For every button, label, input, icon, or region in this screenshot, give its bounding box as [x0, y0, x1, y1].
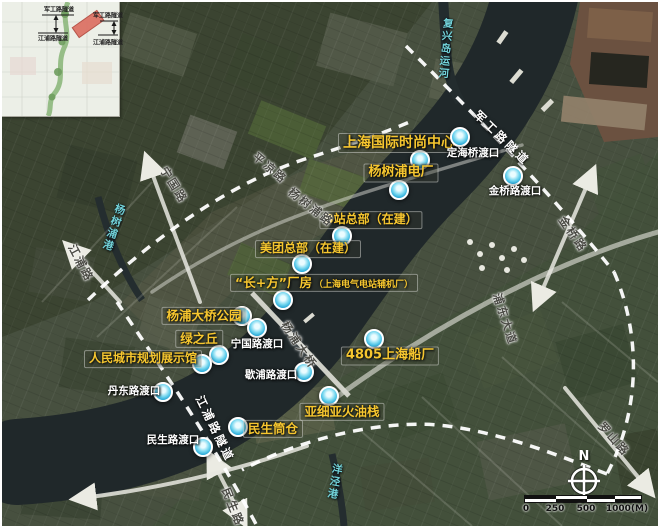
poi-label: 上海国际时尚中心 — [338, 133, 460, 153]
poi-marker[interactable] — [273, 290, 293, 310]
poi-marker[interactable] — [503, 166, 523, 186]
road-label: 平凉路 — [249, 149, 290, 187]
poi-label: 民生路渡口 — [147, 434, 200, 446]
inset-locator-map: 军工路隧道军工路隧道江浦路隧道江浦路隧道 — [2, 2, 120, 117]
waterway-label: 复兴岛运河 — [436, 17, 456, 81]
poi-label: 亚细亚火油栈 — [299, 403, 384, 421]
scale-tick: 500 — [577, 504, 596, 514]
waterway-label: 杨树浦港 — [99, 202, 129, 254]
scale-tick: 250 — [546, 504, 565, 514]
poi-label: 定海桥渡口 — [447, 147, 500, 159]
inset-tunnel-label: 军工路隧道 — [93, 11, 123, 20]
poi-label: 民生筒仓 — [243, 420, 303, 438]
map-canvas: 上海国际时尚中心杨树浦电厂B站总部（在建）美团总部（在建）“长+方”厂房（上海电… — [2, 2, 658, 526]
poi-label: 杨树浦电厂 — [363, 164, 438, 183]
poi-label: 丹东路渡口 — [108, 385, 161, 397]
road-label: 江浦路 — [64, 241, 97, 284]
poi-marker[interactable] — [450, 127, 470, 147]
poi-label: 绿之丘 — [175, 330, 223, 348]
poi-label: 美团总部（在建） — [255, 240, 361, 258]
tunnel-label: 军工路隧道 — [470, 107, 533, 169]
poi-label: 4805上海船厂 — [341, 347, 439, 366]
road-label: 民生路 — [218, 485, 248, 526]
poi-label: 人民城市规划展示馆 — [84, 350, 202, 368]
road-label: 宁国路 — [156, 164, 191, 207]
poi-label: 杨浦大桥公园 — [161, 307, 246, 325]
poi-marker[interactable] — [389, 180, 409, 200]
waterway-label: 洋泾港 — [324, 462, 345, 502]
scale-tick: 0 — [523, 504, 529, 514]
scale-bar-ticks: 0 250 500 1000(M) — [524, 504, 642, 516]
poi-marker[interactable] — [209, 345, 229, 365]
road-label: 杨树浦路 — [285, 184, 337, 230]
poi-label: 宁国路渡口 — [231, 338, 284, 350]
poi-label: “长+方”厂房（上海电气电站辅机厂） — [230, 274, 418, 292]
poi-label: 金桥路渡口 — [489, 185, 542, 197]
inset-tunnel-label: 军工路隧道 — [44, 5, 74, 14]
poi-marker[interactable] — [247, 318, 267, 338]
north-label: N — [564, 449, 604, 464]
screenshot: 上海国际时尚中心杨树浦电厂B站总部（在建）美团总部（在建）“长+方”厂房（上海电… — [0, 0, 660, 530]
scale-tick: 1000(M) — [606, 504, 648, 514]
inset-tunnel-label: 江浦路隧道 — [93, 38, 123, 47]
scale-bar: 0 250 500 1000(M) — [524, 495, 642, 516]
road-label: 金桥路 — [555, 213, 591, 255]
poi-label: 歇浦路渡口 — [245, 369, 298, 381]
scale-bar-graphic — [524, 495, 642, 503]
road-label: 浦东大道 — [489, 291, 521, 347]
inset-tunnel-label: 江浦路隧道 — [38, 34, 68, 43]
